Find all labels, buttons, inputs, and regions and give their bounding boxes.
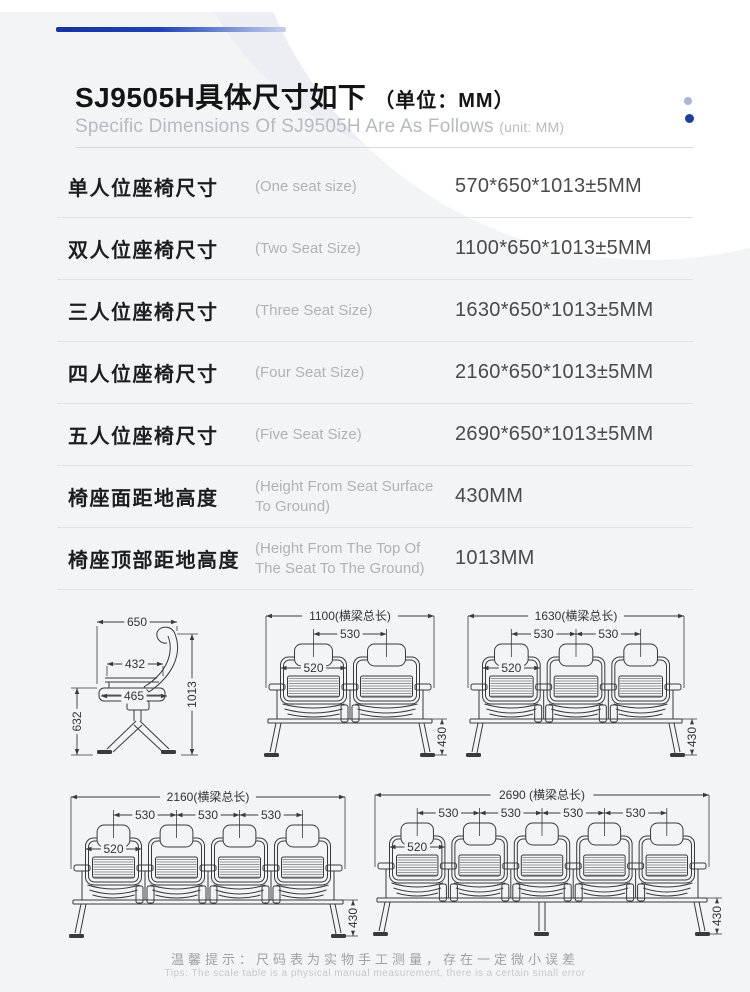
dim-label: 430 [435,727,449,747]
dim-label: 2690 (横梁总长) [499,787,585,802]
dim-label: 430 [685,727,699,747]
dim-label: 430 [346,908,360,928]
dim-label: 530 [438,806,458,820]
spec-label-en: (Height From Seat Surface To Ground) [255,477,455,516]
top-white-band [0,0,750,12]
spec-value: 570*650*1013±5MM [455,175,642,198]
dim-label: 465 [124,689,144,703]
dim-label: 520 [501,661,521,675]
spec-value: 1013MM [455,547,535,570]
spec-label-cn: 单人位座椅尺寸 [68,172,255,201]
spec-value: 2690*650*1013±5MM [455,423,653,446]
dim-label: 530 [563,806,583,820]
drawing-five-seat-front-view: 2690 (横梁总长)530530530530520430 [360,783,724,947]
spec-label-en: (Four Seat Size) [255,363,455,383]
spec-row: 五人位座椅尺寸 (Five Seat Size) 2690*650*1013±5… [57,404,693,466]
dim-label: 530 [501,806,521,820]
decor-dot-light [684,97,692,105]
drawing-two-seat-front-view: 1100(横梁总长)530520430 [251,604,449,768]
spec-row: 三人位座椅尺寸 (Three Seat Size) 1630*650*1013±… [57,280,693,342]
dim-label: 1630(横梁总长) [535,608,618,623]
spec-row: 四人位座椅尺寸 (Four Seat Size) 2160*650*1013±5… [57,342,693,404]
drawing-three-seat-front-view: 1630(横梁总长)530530520430 [453,604,699,768]
dim-label: 530 [198,808,218,822]
dim-label: 650 [127,615,147,629]
dim-label: 632 [70,711,84,731]
dim-label: 1013 [185,681,199,708]
dim-label: 530 [135,808,155,822]
spec-label-en: (Two Seat Size) [255,239,455,259]
footer-tip-en: Tips: The scale table is a physical manu… [0,968,750,979]
spec-row: 椅座顶部距地高度 (Height From The Top Of The Sea… [57,528,693,590]
spec-label-en: (Height From The Top Of The Seat To The … [255,539,455,578]
spec-label-cn: 四人位座椅尺寸 [68,358,255,387]
spec-label-cn: 椅座顶部距地高度 [68,544,255,573]
dim-label: 432 [125,657,145,671]
spec-value: 1100*650*1013±5MM [455,237,652,260]
dim-label: 430 [710,906,724,926]
spec-row: 单人位座椅尺寸 (One seat size) 570*650*1013±5MM [57,156,693,218]
spec-label-en: (One seat size) [255,177,455,197]
spec-label-cn: 双人位座椅尺寸 [68,234,255,263]
title-unit: （单位：MM） [374,90,514,112]
spec-value: 430MM [455,485,523,508]
spec-label-cn: 椅座面距地高度 [68,482,255,511]
dim-label: 520 [407,840,427,854]
spec-label-en: (Three Seat Size) [255,301,455,321]
spec-label-cn: 三人位座椅尺寸 [68,296,255,325]
drawing-four-seat-front-view: 2160(横梁总长)530530530520430 [56,785,360,949]
dim-label: 520 [303,661,323,675]
dim-label: 520 [103,842,123,856]
dim-label: 530 [626,806,646,820]
spec-row: 椅座面距地高度 (Height From Seat Surface To Gro… [57,466,693,528]
title-text: SJ9505H具体尺寸如下 [75,82,366,113]
spec-label-en: (Five Seat Size) [255,425,455,445]
dim-label: 530 [261,808,281,822]
accent-line [56,27,286,32]
decor-dot-dark [685,114,694,123]
subtitle-text: Specific Dimensions Of SJ9505H Are As Fo… [75,116,494,137]
page-title: SJ9505H具体尺寸如下（单位：MM） [75,76,515,116]
header-divider [75,147,693,148]
spec-row: 双人位座椅尺寸 (Two Seat Size) 1100*650*1013±5M… [57,218,693,280]
page-subtitle: Specific Dimensions Of SJ9505H Are As Fo… [75,116,564,138]
drawings-section: 6504324656321013 1100(横梁总长)530520430 163… [0,600,750,960]
dim-label: 2160(横梁总长) [167,789,250,804]
dim-label: 530 [340,627,360,641]
dim-label: 1100(横梁总长) [309,608,391,623]
spec-table: 单人位座椅尺寸 (One seat size) 570*650*1013±5MM… [57,156,693,590]
subtitle-unit: (unit: MM) [499,119,564,135]
spec-value: 2160*650*1013±5MM [455,361,653,384]
footer-tip-cn: 温馨提示：尺码表为实物手工测量，存在一定微小误差 [0,949,750,968]
spec-value: 1630*650*1013±5MM [455,299,653,322]
drawing-one-seat-side-view: 6504324656321013 [57,600,227,764]
dim-label: 530 [598,627,618,641]
dim-label: 530 [534,627,554,641]
spec-label-cn: 五人位座椅尺寸 [68,420,255,449]
